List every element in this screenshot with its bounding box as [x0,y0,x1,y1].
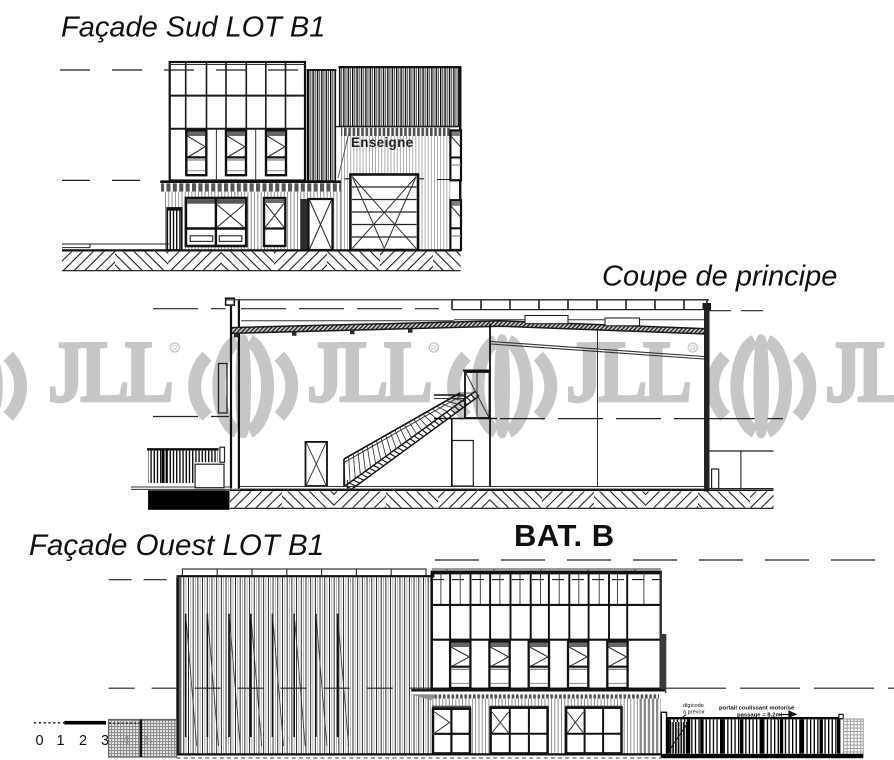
svg-text:Coupe de principe: Coupe de principe [602,261,837,293]
svg-text:JLL: JLL [307,323,430,420]
svg-text:0: 0 [36,733,44,749]
svg-text:5: 5 [145,733,153,749]
svg-text:JLL: JLL [825,323,894,420]
svg-text:R: R [690,344,696,353]
svg-text:digicode: digicode [683,703,704,709]
svg-text:4: 4 [122,733,130,749]
svg-text:JLL: JLL [48,323,171,420]
svg-text:1: 1 [57,733,65,749]
svg-text:R: R [431,344,437,353]
svg-text:R: R [172,344,178,353]
svg-text:Façade Sud LOT B1: Façade Sud LOT B1 [61,12,325,44]
svg-text:à prévoir: à prévoir [683,710,705,716]
svg-text:JLL: JLL [566,323,689,420]
svg-text:portail coulissant motorisé: portail coulissant motorisé [719,706,795,712]
svg-text:Enseigne: Enseigne [351,135,414,150]
svg-text:Façade Ouest LOT B1: Façade Ouest LOT B1 [29,529,324,562]
svg-text:2: 2 [79,733,87,749]
svg-text:3: 3 [101,733,109,749]
svg-text:BAT. B: BAT. B [514,518,615,553]
